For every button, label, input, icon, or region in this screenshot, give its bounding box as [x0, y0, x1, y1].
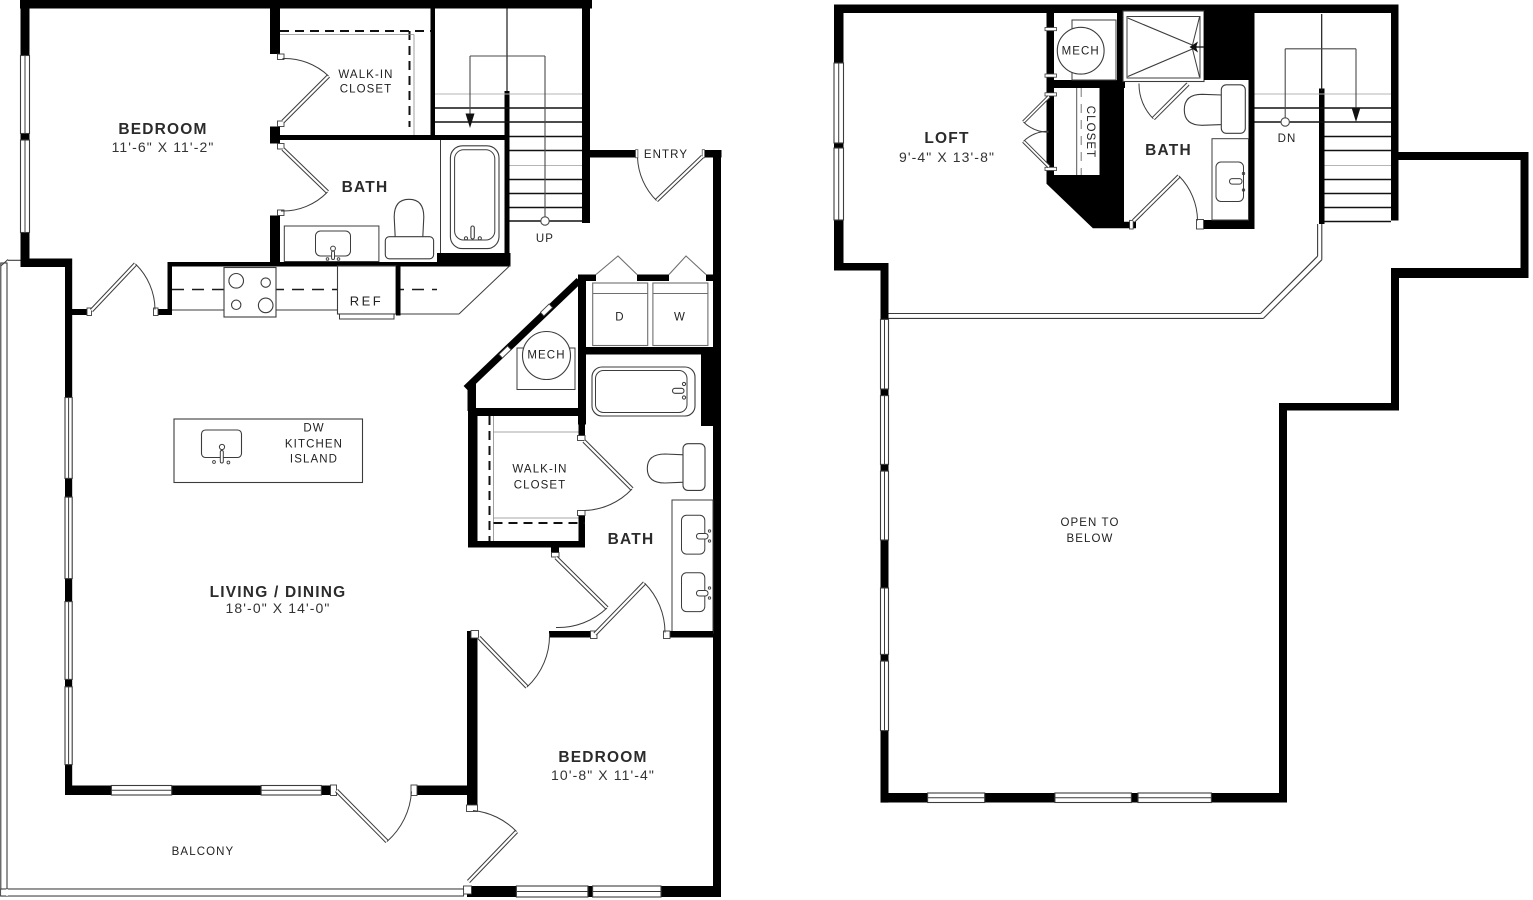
svg-text:WALK-IN: WALK-IN: [338, 69, 393, 81]
svg-text:D: D: [615, 312, 624, 324]
svg-text:WALK-IN: WALK-IN: [512, 464, 567, 476]
svg-text:BATH: BATH: [342, 179, 389, 196]
svg-text:ENTRY: ENTRY: [644, 149, 688, 161]
svg-text:UP: UP: [536, 233, 554, 245]
svg-text:11'-6" X 11'-2": 11'-6" X 11'-2": [112, 139, 215, 155]
svg-text:BATH: BATH: [1145, 142, 1192, 159]
svg-text:18'-0" X 14'-0": 18'-0" X 14'-0": [226, 600, 331, 616]
svg-text:LOFT: LOFT: [924, 130, 969, 147]
svg-text:MECH: MECH: [1062, 46, 1100, 58]
svg-text:BELOW: BELOW: [1066, 533, 1113, 545]
svg-text:OPEN TO: OPEN TO: [1060, 517, 1119, 529]
svg-text:DN: DN: [1278, 133, 1297, 145]
svg-text:BEDROOM: BEDROOM: [558, 749, 647, 766]
svg-text:REF: REF: [350, 294, 384, 309]
svg-text:MECH: MECH: [527, 350, 565, 362]
svg-text:CLOSET: CLOSET: [340, 84, 393, 96]
svg-text:9'-4" X 13'-8": 9'-4" X 13'-8": [899, 149, 995, 165]
svg-text:CLOSET: CLOSET: [514, 480, 567, 492]
svg-text:BEDROOM: BEDROOM: [118, 121, 207, 138]
svg-text:BATH: BATH: [608, 531, 655, 548]
svg-text:CLOSET: CLOSET: [1084, 106, 1096, 159]
svg-text:ISLAND: ISLAND: [290, 454, 338, 466]
svg-text:LIVING / DINING: LIVING / DINING: [210, 584, 347, 601]
svg-text:W: W: [674, 312, 686, 324]
svg-text:10'-8" X 11'-4": 10'-8" X 11'-4": [551, 767, 655, 783]
svg-text:KITCHEN: KITCHEN: [285, 439, 343, 451]
svg-text:BALCONY: BALCONY: [172, 846, 235, 858]
svg-text:DW: DW: [303, 423, 324, 435]
